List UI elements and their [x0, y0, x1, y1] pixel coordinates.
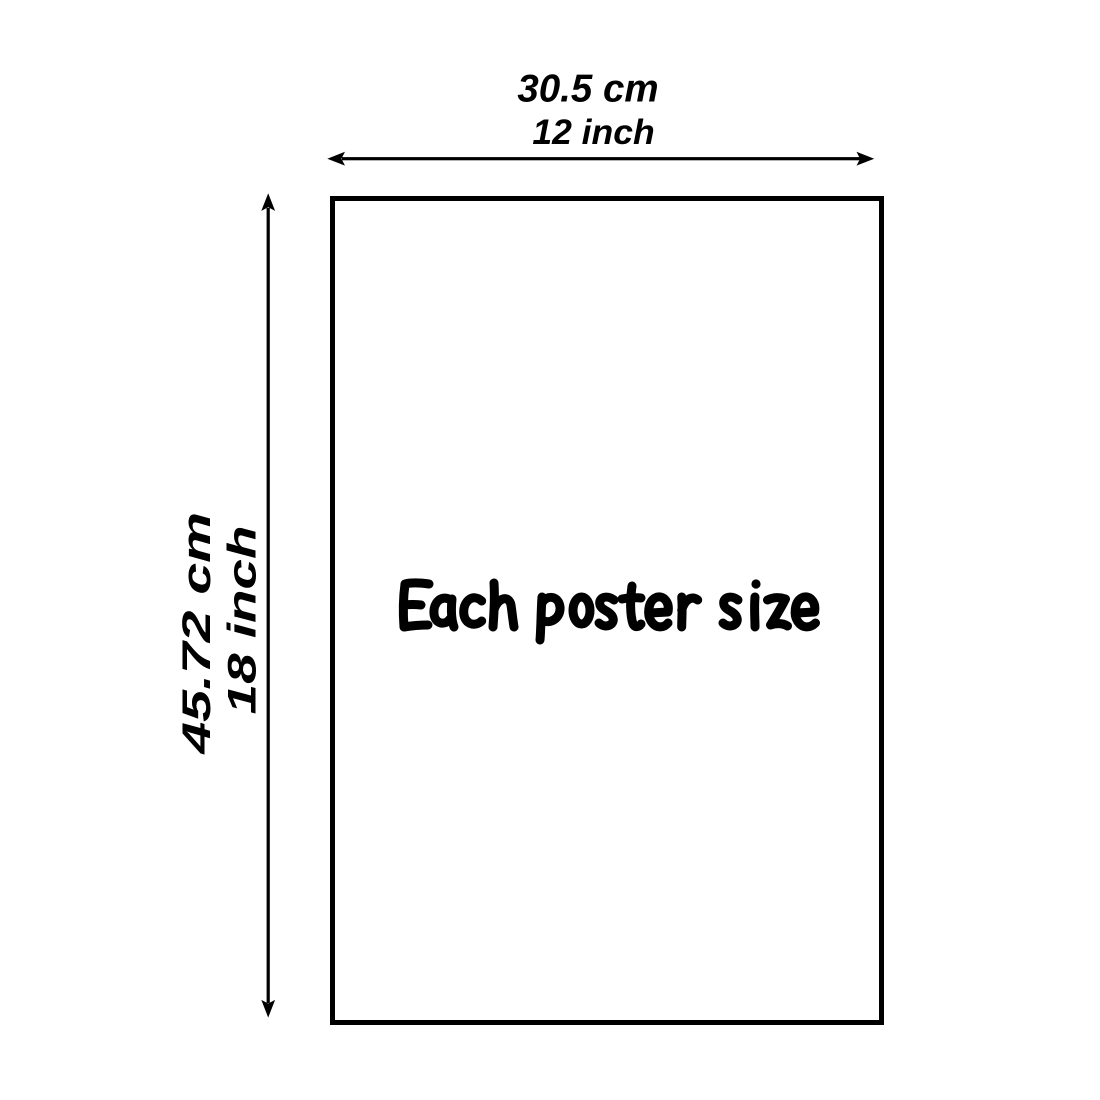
svg-text:45.72 cm: 45.72 cm: [174, 512, 219, 755]
svg-text:18 inch: 18 inch: [220, 526, 264, 715]
svg-text:30.5 cm: 30.5 cm: [517, 68, 658, 111]
svg-text:12 inch: 12 inch: [532, 112, 654, 152]
